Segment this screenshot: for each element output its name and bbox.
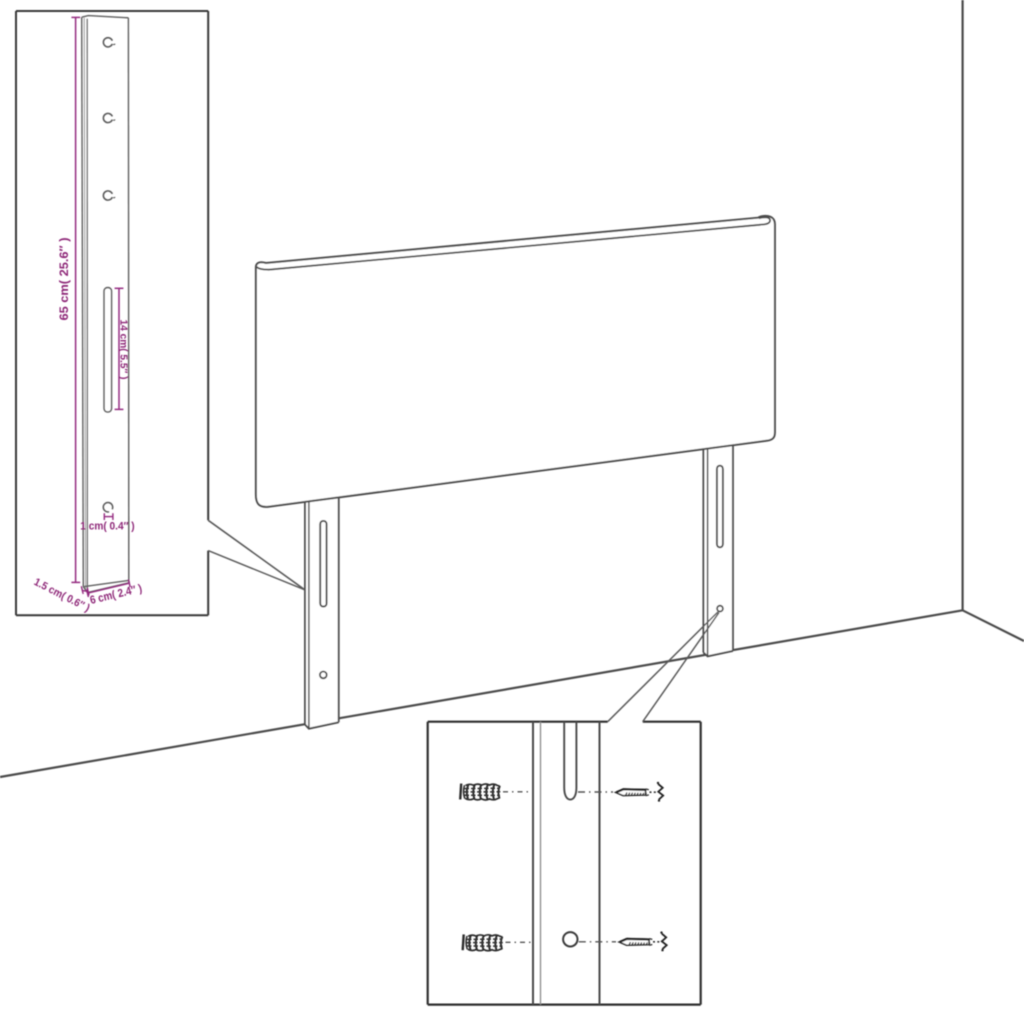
svg-text:14 cm( 5.5″ ): 14 cm( 5.5″ ) <box>118 320 130 380</box>
svg-text:1 cm( 0.4″ ): 1 cm( 0.4″ ) <box>80 520 135 532</box>
svg-text:65 cm( 25.6″ ): 65 cm( 25.6″ ) <box>57 238 71 321</box>
